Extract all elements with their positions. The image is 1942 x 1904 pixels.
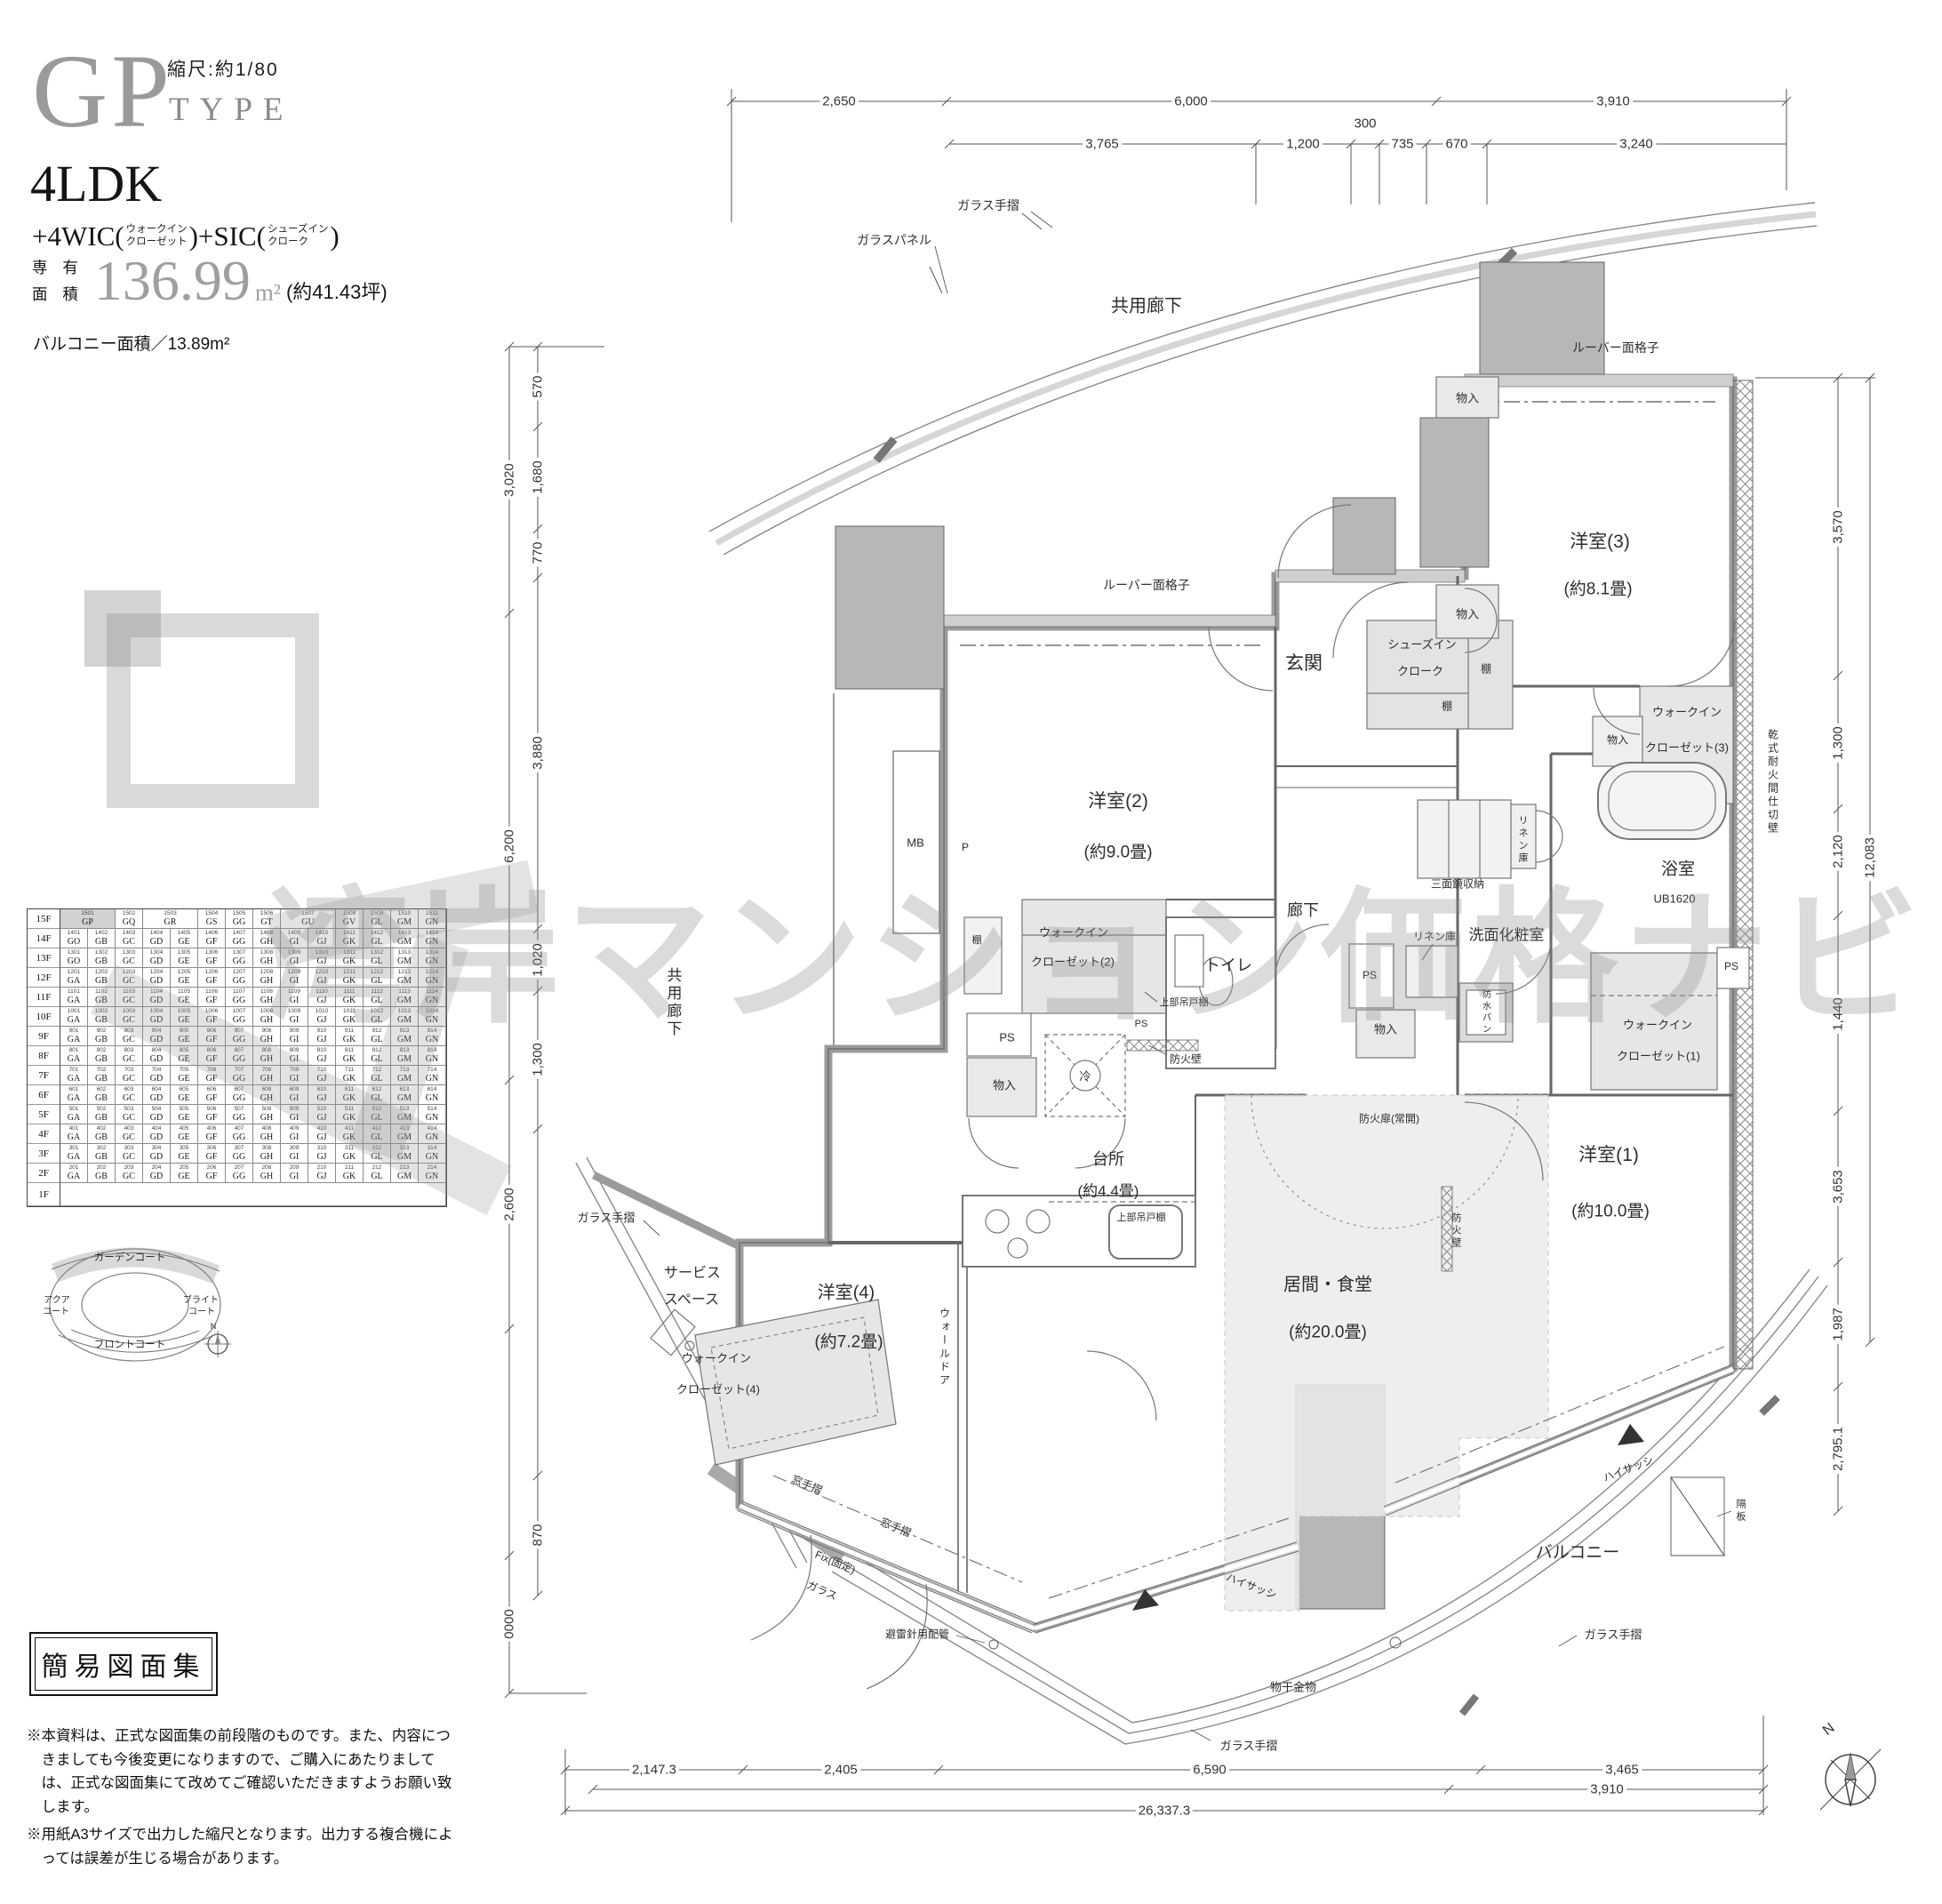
site-aqua-court-label2: コート	[43, 1304, 69, 1317]
floorplan-page: GP 縮尺:約1/80 TYPE 4LDK +4WIC( ウォークイン クローゼ…	[0, 0, 1942, 1904]
compass-icon	[1820, 1749, 1881, 1810]
dry-firewall	[1733, 380, 1753, 1369]
site-compass-n: N	[211, 1322, 217, 1331]
floorplan-drawing	[0, 0, 1942, 1904]
site-garden-court-label: ガーデンコート	[94, 1250, 166, 1264]
site-front-court-label: フロントコート	[94, 1337, 166, 1351]
mb-shaft	[893, 751, 939, 933]
site-bright-court-label2: コート	[188, 1304, 215, 1317]
ld-floor	[1225, 1095, 1548, 1611]
